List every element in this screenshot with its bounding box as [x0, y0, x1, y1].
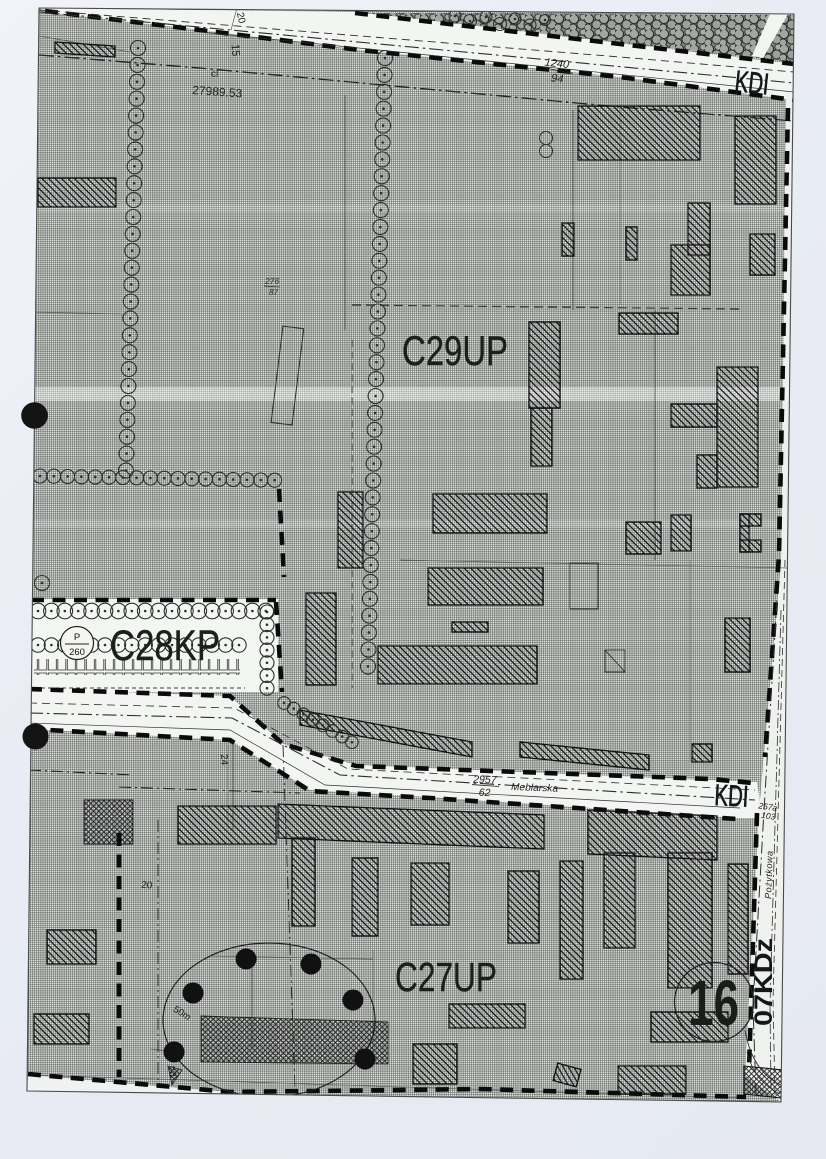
- svg-text:KDI: KDI: [714, 779, 750, 814]
- svg-text:Pożytkowa: Pożytkowa: [763, 851, 775, 899]
- svg-text:87: 87: [269, 288, 278, 297]
- svg-text:62: 62: [479, 787, 491, 799]
- svg-text:103: 103: [761, 810, 777, 822]
- svg-text:07KDz: 07KDz: [750, 938, 778, 1026]
- svg-text:cl: cl: [211, 69, 218, 80]
- svg-text:16: 16: [688, 967, 739, 1039]
- svg-text:276: 276: [264, 276, 279, 286]
- svg-text:15: 15: [229, 44, 242, 57]
- svg-text:260: 260: [69, 647, 85, 658]
- svg-text:C28KP: C28KP: [110, 622, 220, 670]
- svg-text:P: P: [74, 632, 80, 643]
- svg-text:24: 24: [218, 754, 230, 766]
- svg-text:C27UP: C27UP: [395, 954, 497, 1000]
- svg-text:20: 20: [141, 880, 153, 892]
- svg-text:KDI: KDI: [733, 65, 770, 101]
- svg-text:Meblarska: Meblarska: [511, 782, 559, 795]
- svg-text:C29UP: C29UP: [402, 327, 508, 374]
- svg-text:94: 94: [550, 72, 563, 85]
